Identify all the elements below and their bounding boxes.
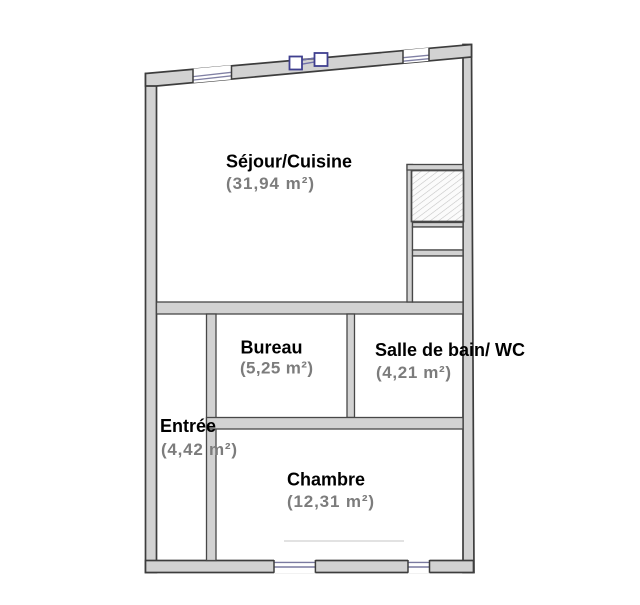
- svg-text:Entrée: Entrée: [160, 416, 216, 436]
- svg-text:Chambre: Chambre: [287, 470, 365, 490]
- svg-text:Bureau: Bureau: [241, 338, 303, 358]
- svg-text:(4,21 m²): (4,21 m²): [376, 363, 451, 382]
- svg-text:Séjour/Cuisine: Séjour/Cuisine: [226, 152, 352, 172]
- svg-text:(31,94 m²): (31,94 m²): [226, 174, 314, 193]
- svg-text:Salle de bain/ WC: Salle de bain/ WC: [375, 340, 525, 360]
- svg-text:(4,42 m²): (4,42 m²): [161, 440, 237, 459]
- svg-text:(5,25 m²): (5,25 m²): [240, 359, 313, 378]
- svg-text:(12,31 m²): (12,31 m²): [287, 492, 374, 511]
